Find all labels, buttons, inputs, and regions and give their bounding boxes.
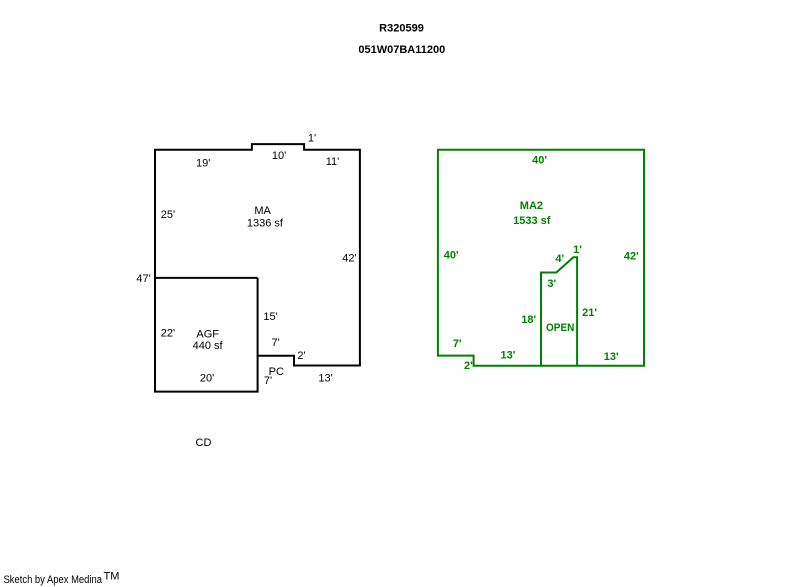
svg-text:25': 25': [161, 209, 175, 221]
svg-text:47': 47': [136, 273, 150, 285]
svg-text:15': 15': [263, 311, 277, 323]
svg-text:13': 13': [604, 351, 619, 363]
svg-text:3': 3': [547, 278, 556, 290]
svg-text:7': 7': [264, 375, 272, 387]
svg-text:440 sf: 440 sf: [193, 340, 224, 352]
svg-text:MA: MA: [254, 205, 271, 217]
svg-text:42': 42': [624, 251, 639, 263]
svg-text:Sketch by Apex Medina: Sketch by Apex Medina: [4, 574, 103, 586]
svg-text:42': 42': [342, 253, 356, 265]
svg-text:7': 7': [453, 338, 462, 350]
svg-text:22': 22': [161, 328, 175, 340]
svg-text:1533 sf: 1533 sf: [513, 215, 551, 227]
svg-text:OPEN: OPEN: [546, 322, 574, 334]
svg-text:1336 sf: 1336 sf: [247, 218, 284, 230]
svg-text:AGF: AGF: [196, 328, 219, 340]
svg-text:10': 10': [272, 150, 286, 162]
svg-text:21': 21': [582, 307, 597, 319]
svg-text:051W07BA11200: 051W07BA11200: [358, 44, 445, 56]
svg-text:20': 20': [200, 373, 214, 385]
svg-text:MA2: MA2: [520, 200, 543, 212]
svg-text:4': 4': [555, 253, 564, 265]
svg-text:13': 13': [500, 350, 515, 362]
svg-text:1': 1': [308, 133, 316, 145]
svg-text:7': 7': [271, 337, 279, 349]
svg-text:18': 18': [521, 314, 536, 326]
svg-text:CD: CD: [196, 437, 212, 449]
svg-text:11': 11': [326, 156, 340, 168]
svg-text:13': 13': [318, 373, 332, 385]
svg-text:2': 2': [464, 360, 473, 372]
svg-text:R320599: R320599: [379, 23, 424, 35]
svg-text:40': 40': [532, 155, 547, 167]
svg-text:TM: TM: [104, 571, 120, 583]
svg-text:40': 40': [444, 250, 459, 262]
svg-text:2': 2': [297, 350, 305, 362]
svg-text:19': 19': [196, 158, 210, 170]
svg-text:1': 1': [573, 244, 582, 256]
